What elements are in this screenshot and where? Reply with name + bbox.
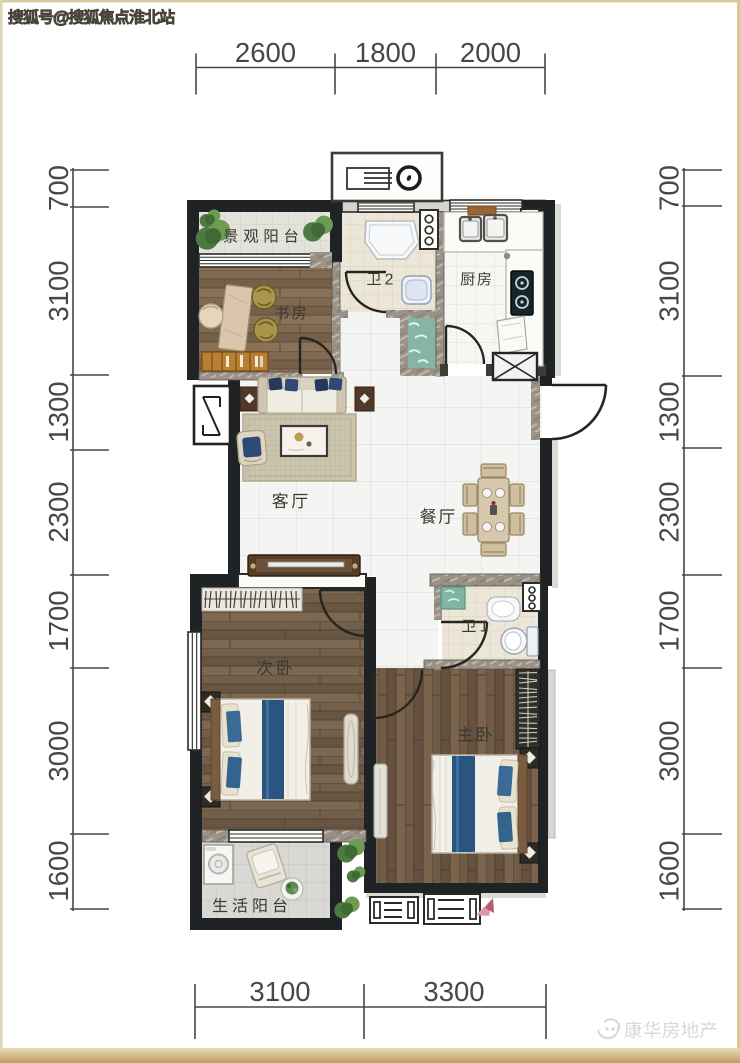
svg-text:700: 700 [654, 165, 685, 211]
svg-text:1: 1 [480, 618, 489, 635]
svg-text:3300: 3300 [423, 976, 484, 1007]
svg-text:1800: 1800 [355, 37, 416, 68]
svg-text:2600: 2600 [235, 37, 296, 68]
svg-text:1600: 1600 [43, 840, 74, 901]
svg-text:3100: 3100 [43, 260, 74, 321]
svg-text:3000: 3000 [43, 720, 74, 781]
svg-text:2300: 2300 [654, 481, 685, 542]
svg-text:3100: 3100 [249, 976, 310, 1007]
svg-text:3000: 3000 [654, 720, 685, 781]
svg-text:2: 2 [385, 271, 394, 288]
svg-text:700: 700 [43, 165, 74, 211]
svg-text:@: @ [53, 8, 70, 27]
svg-text:1300: 1300 [654, 381, 685, 442]
svg-text:3100: 3100 [654, 260, 685, 321]
svg-text:1700: 1700 [43, 590, 74, 651]
svg-text:1700: 1700 [654, 590, 685, 651]
svg-text:1600: 1600 [654, 840, 685, 901]
svg-text:1300: 1300 [43, 381, 74, 442]
svg-text:2300: 2300 [43, 481, 74, 542]
svg-text:2000: 2000 [460, 37, 521, 68]
